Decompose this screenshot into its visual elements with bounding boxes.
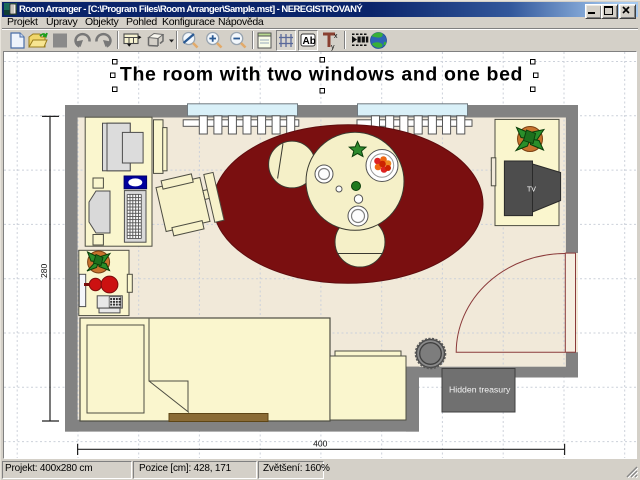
svg-text:TV: TV bbox=[527, 187, 536, 194]
svg-text:y: y bbox=[331, 44, 335, 51]
svg-text:Hidden treasury: Hidden treasury bbox=[449, 385, 511, 395]
svg-text:Ab: Ab bbox=[303, 36, 316, 47]
svg-text:400: 400 bbox=[313, 438, 328, 448]
svg-text:280: 280 bbox=[39, 263, 49, 278]
svg-text:x: x bbox=[334, 33, 338, 40]
svg-text:The room with two windows and: The room with two windows and one bed bbox=[120, 64, 523, 86]
